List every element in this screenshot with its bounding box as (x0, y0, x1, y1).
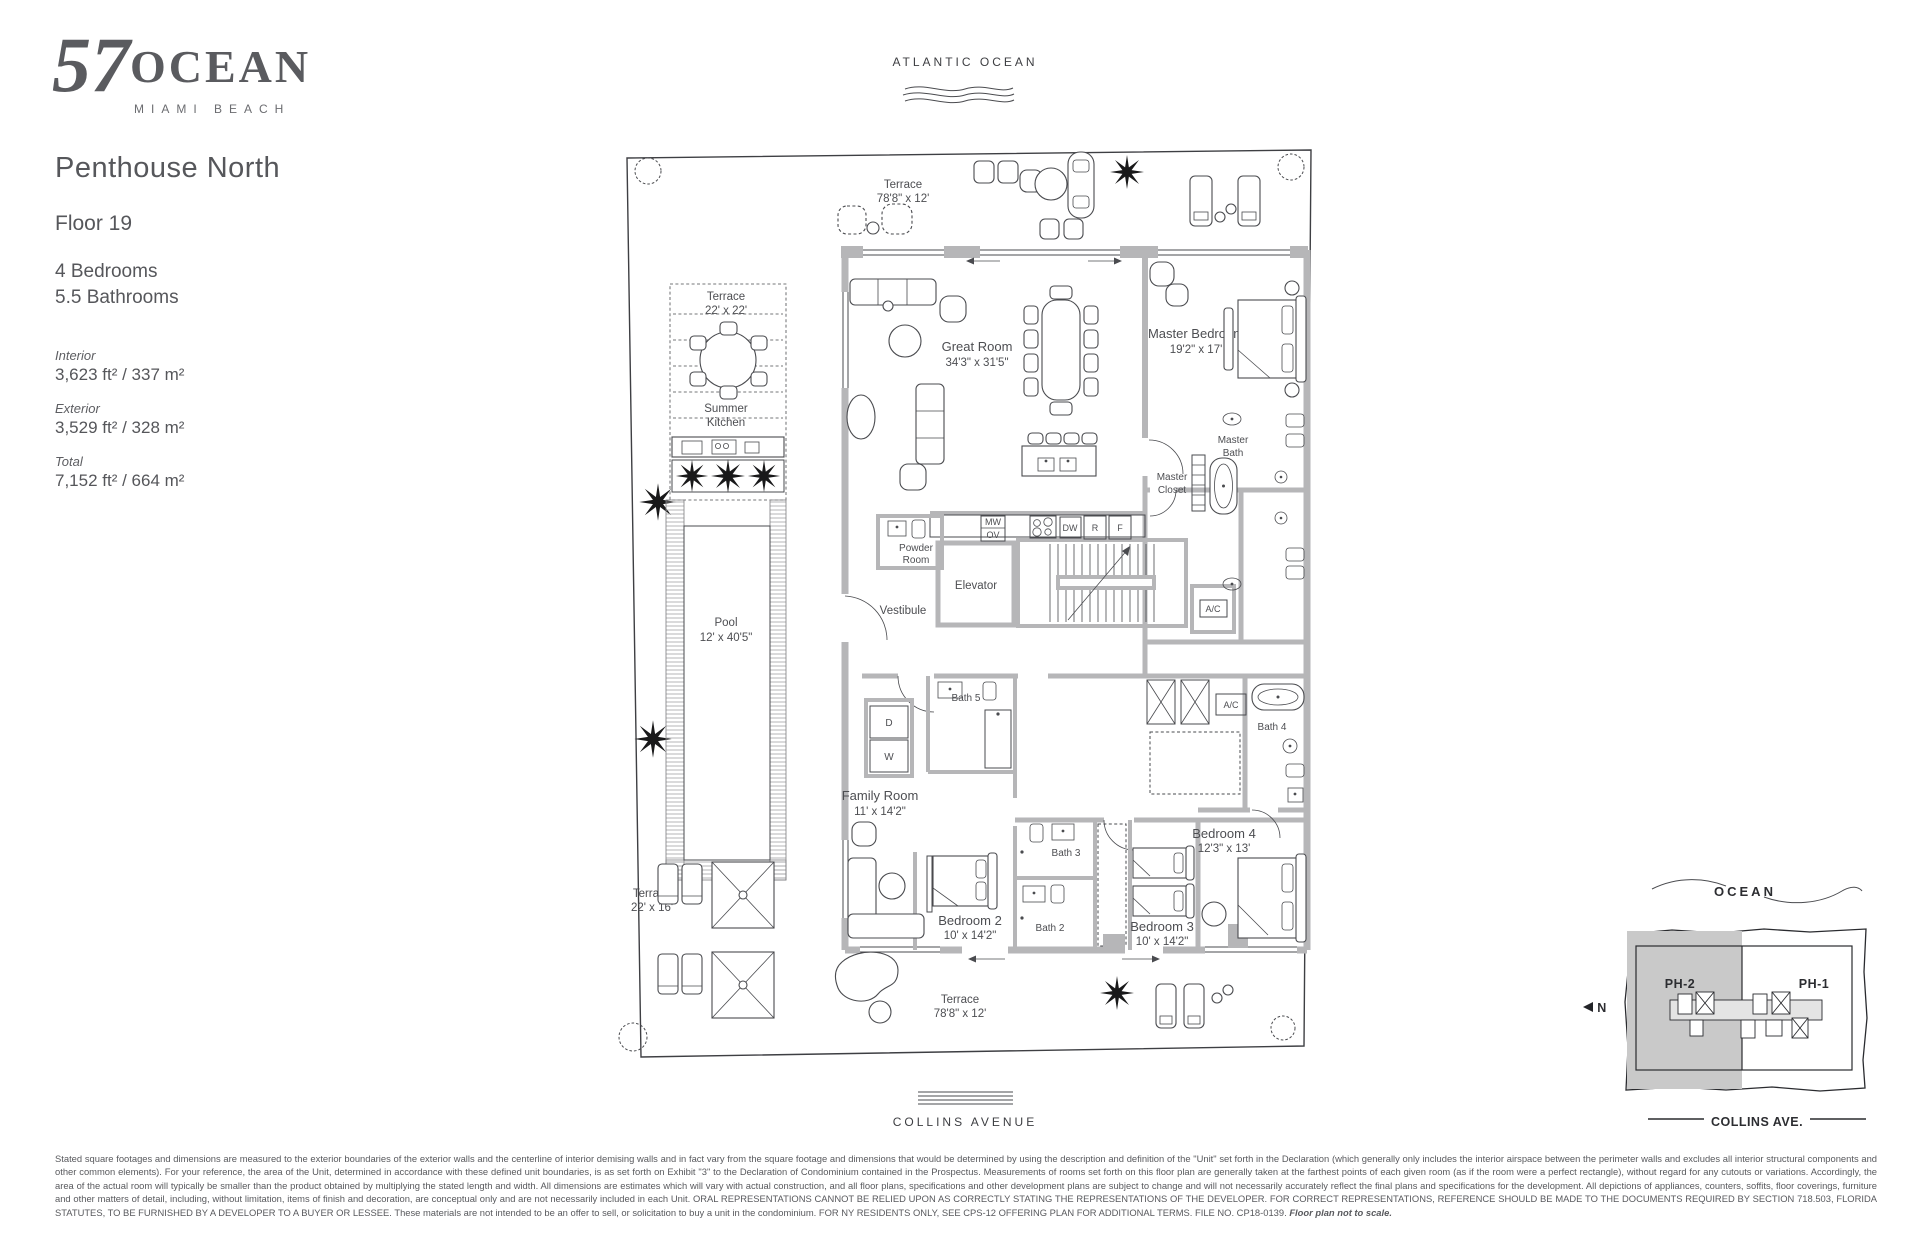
palm-planter (672, 459, 784, 493)
floorplan-drawing: ATLANTIC OCEAN COLLINS AVENUE Terrace 22… (0, 0, 1920, 1242)
great-room-dim: 34'3" x 31'5" (945, 357, 1008, 369)
master-closet-name2: Closet (1158, 485, 1187, 496)
kitchen: MW OV DW R F (930, 433, 1145, 541)
freezer-label: F (1117, 523, 1123, 533)
terrace-22x16: Terrace 22' x 16' (631, 862, 774, 1018)
sitting-chairs (1150, 262, 1188, 306)
bedroom2: Bedroom 2 10' x 14'2" (933, 853, 1002, 942)
summer-kitchen-counter (672, 437, 784, 457)
ac-label: A/C (1205, 604, 1221, 614)
atlantic-ocean-text: ATLANTIC OCEAN (892, 55, 1037, 69)
lounger-icon (658, 864, 702, 994)
terrace-22x22-name: Terrace (707, 291, 745, 303)
wave-icon (903, 87, 1014, 103)
legal-disclaimer: Stated square footages and dimensions ar… (55, 1152, 1877, 1219)
bathtub-icon (1210, 458, 1237, 514)
bath3: Bath 3 (1020, 824, 1080, 859)
dining-table (1024, 286, 1098, 415)
pool: Pool 12' x 40'5" (666, 500, 786, 880)
bedroom2-name: Bedroom 2 (938, 913, 1002, 928)
disclaimer-body: Stated square footages and dimensions ar… (55, 1153, 1877, 1218)
master-bath-name2: Bath (1223, 448, 1244, 459)
bath5: Bath 5 (938, 682, 1011, 768)
cabana-icon (712, 862, 774, 1018)
terrace-top-name: Terrace (884, 179, 922, 191)
powder-room: Powder Room (878, 516, 942, 568)
keyplan-ph1-label: PH-1 (1799, 977, 1829, 991)
bottom-terrace: Terrace 78'8" x 12' (835, 952, 1233, 1028)
family-room: Family Room 11' x 14'2" (842, 788, 932, 938)
summer-kitchen-name2: Kitchen (707, 417, 745, 429)
bedroom4-name: Bedroom 4 (1192, 826, 1256, 841)
terrace-22x22: Terrace 22' x 22' Summer Kitchen (670, 284, 786, 500)
dishwasher-label: DW (1063, 523, 1078, 533)
terrace-bottom-name: Terrace (941, 994, 979, 1006)
bedroom2-dim: 10' x 14'2" (944, 930, 997, 942)
top-terrace: Terrace 78'8" x 12' (838, 152, 1260, 239)
bath4-label: Bath 4 (1258, 722, 1287, 733)
disclaimer-note: Floor plan not to scale. (1289, 1207, 1392, 1218)
great-room-name: Great Room (942, 339, 1013, 354)
building-core: Elevator A/C A/C (938, 540, 1246, 724)
bedroom3-dim: 10' x 14'2" (1136, 936, 1189, 948)
north-arrow-icon: N (1583, 1001, 1607, 1015)
outdoor-dining-table (690, 322, 767, 399)
bedroom4-dim: 12'3" x 13' (1198, 843, 1251, 855)
living-furniture (847, 279, 966, 490)
atlantic-ocean-label: ATLANTIC OCEAN (892, 55, 1037, 103)
north-label: N (1597, 1001, 1607, 1015)
microwave-label: MW (985, 517, 1001, 527)
elevator-label: Elevator (955, 580, 997, 592)
bedroom3-name: Bedroom 3 (1130, 919, 1194, 934)
master-bedroom-dim: 19'2" x 17' (1170, 344, 1223, 356)
master-closet: Master Closet (1157, 455, 1205, 511)
bath2-label: Bath 2 (1036, 923, 1065, 934)
bath3-label: Bath 3 (1052, 848, 1081, 859)
summer-kitchen-name1: Summer (704, 403, 748, 415)
ac-label-2: A/C (1223, 700, 1239, 710)
kitchen-island (1022, 433, 1097, 476)
keyplan-collins-label: COLLINS AVE. (1711, 1115, 1803, 1129)
terrace-top-dim: 78'8" x 12' (877, 193, 930, 205)
bath4: Bath 4 (1252, 684, 1304, 802)
master-bedroom: Master Bedroom 19'2" x 17' (1148, 262, 1306, 397)
bedroom4: Bedroom 4 12'3" x 13' (1192, 826, 1306, 942)
keyplan-wave-icon (1764, 887, 1862, 902)
master-closet-name1: Master (1157, 472, 1188, 483)
washer-label: W (884, 752, 894, 763)
master-bath-name1: Master (1218, 435, 1249, 446)
collins-avenue-label: COLLINS AVENUE (893, 1092, 1037, 1129)
family-room-name: Family Room (842, 788, 919, 803)
terrace-22x22-dim: 22' x 22' (705, 305, 747, 317)
keyplan-ph2-label: PH-2 (1665, 977, 1695, 991)
key-plan: OCEAN PH-2 PH-1 N COLLINS AVE. (1583, 880, 1867, 1129)
pool-name: Pool (714, 617, 737, 629)
master-bath: Master Bath (1210, 413, 1304, 590)
refrigerator-label: R (1092, 523, 1099, 533)
oven-label: OV (986, 530, 999, 540)
terrace-furniture (835, 952, 1233, 1028)
family-room-dim: 11' x 14'2" (854, 806, 906, 818)
road-icon (918, 1092, 1013, 1104)
floorplan-sheet: { "brand": {"number": "57", "name": "OCE… (0, 0, 1920, 1242)
keyplan-ocean-label: OCEAN (1714, 884, 1776, 899)
powder-room-name2: Room (903, 555, 930, 566)
pool-dim: 12' x 40'5" (700, 632, 753, 644)
dryer-label: D (885, 718, 892, 729)
collins-avenue-text: COLLINS AVENUE (893, 1115, 1037, 1129)
bath5-label: Bath 5 (952, 693, 981, 704)
laundry-closet: D W (870, 706, 908, 772)
bath2: Bath 2 (1020, 885, 1064, 934)
stairs-icon (1050, 544, 1156, 622)
powder-room-name1: Powder (899, 543, 934, 554)
vestibule-label: Vestibule (880, 605, 927, 617)
terrace-bottom-dim: 78'8" x 12' (934, 1008, 987, 1020)
bedroom3: Bedroom 3 10' x 14'2" (1130, 846, 1194, 948)
